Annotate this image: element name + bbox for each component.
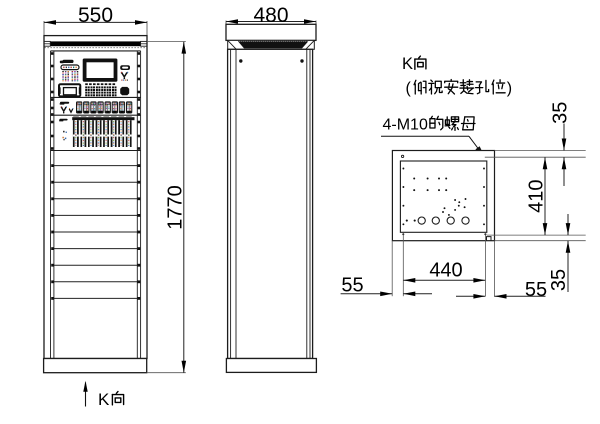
svg-text:550: 550 <box>78 4 113 27</box>
svg-text:55: 55 <box>341 274 363 296</box>
svg-text:480: 480 <box>253 4 288 27</box>
svg-text:440: 440 <box>429 260 462 282</box>
svg-text:): ) <box>507 80 512 97</box>
svg-text:410: 410 <box>525 180 547 213</box>
svg-text:(: ( <box>406 80 412 97</box>
svg-text:35: 35 <box>548 269 570 291</box>
svg-text:K: K <box>98 390 110 409</box>
svg-text:4-M10: 4-M10 <box>383 117 428 134</box>
svg-text:35: 35 <box>549 102 571 124</box>
svg-text:K: K <box>402 55 413 73</box>
svg-text:55: 55 <box>525 279 547 301</box>
svg-text:1770: 1770 <box>165 185 187 230</box>
